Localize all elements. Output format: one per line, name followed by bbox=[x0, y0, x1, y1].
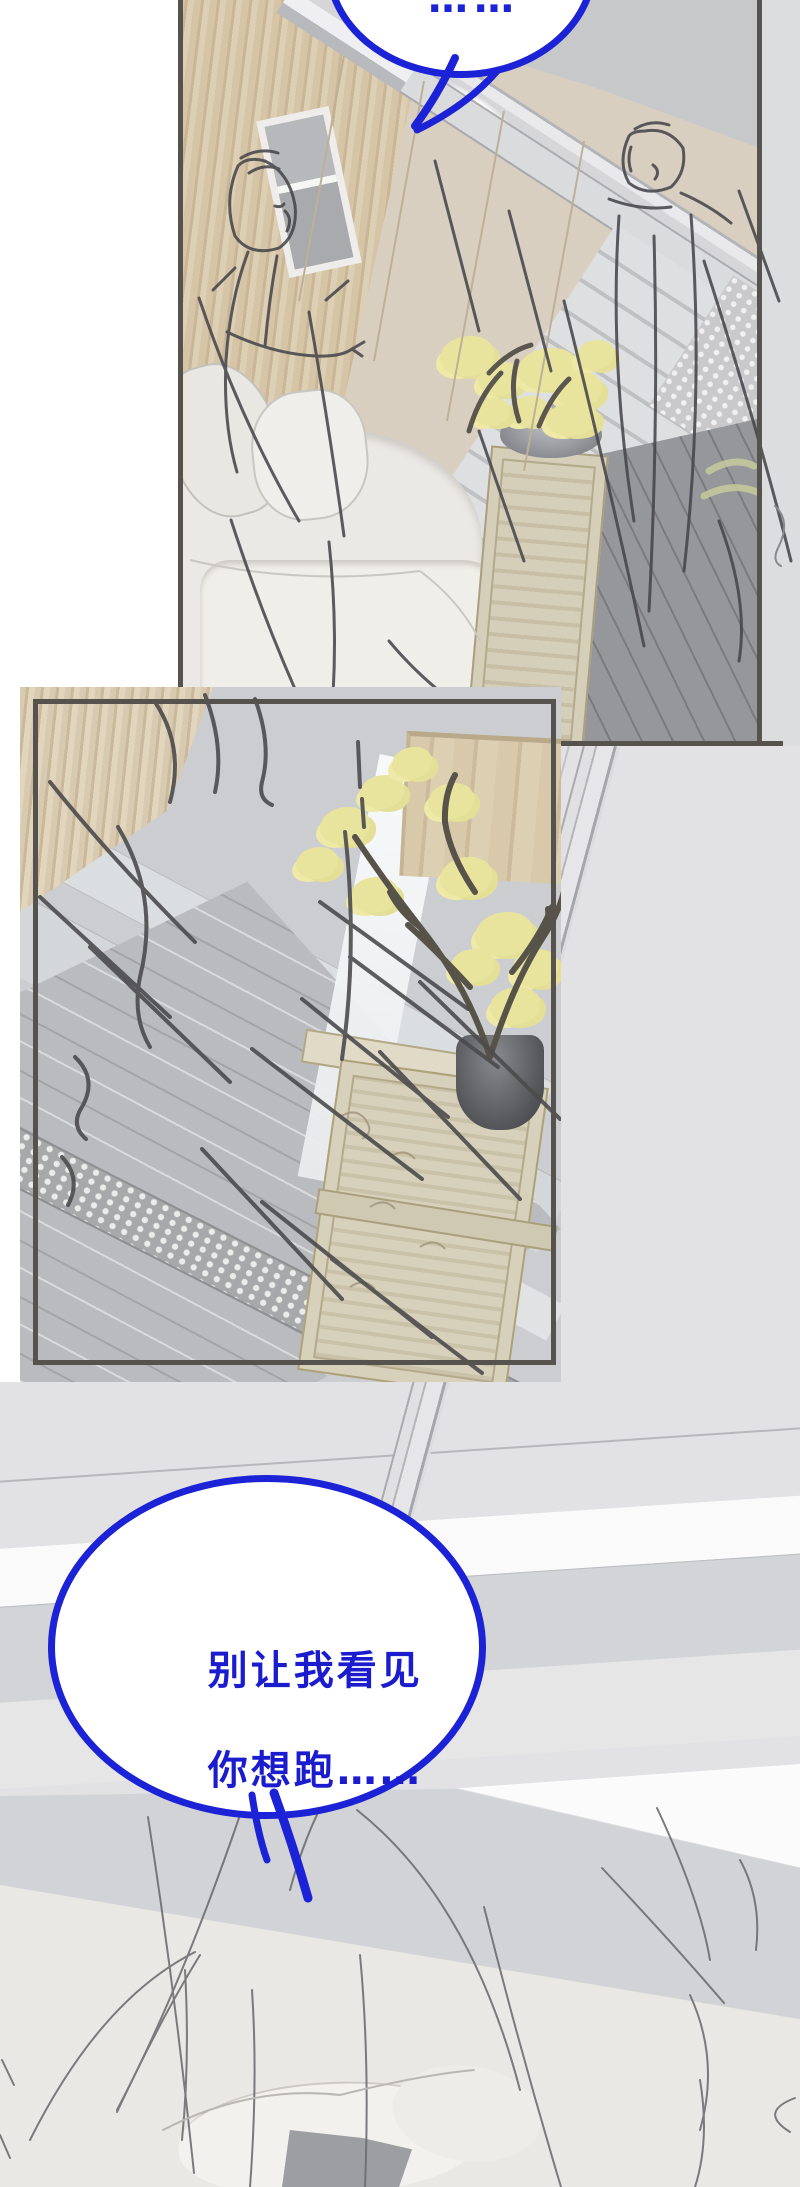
bubble-line-1: 别让我看见 bbox=[208, 1648, 423, 1694]
comic-page: …… bbox=[0, 0, 800, 2187]
panel2-border-bottom bbox=[33, 1360, 556, 1365]
panel-1: …… bbox=[178, 0, 800, 746]
speech-bubble-partial-text: …… bbox=[428, 0, 520, 24]
panel2-sketch-lines bbox=[20, 687, 561, 1382]
speech-bubble-tail bbox=[408, 52, 508, 142]
panel1-border-right bbox=[757, 0, 762, 746]
plant-branches bbox=[355, 775, 561, 1057]
speech-bubble-main-tail bbox=[240, 1786, 330, 1906]
plant-leaves bbox=[704, 462, 759, 496]
panel-2 bbox=[20, 687, 561, 1382]
panel2-border-top bbox=[33, 699, 556, 704]
plant-branches bbox=[469, 345, 569, 431]
figure-sketches bbox=[199, 123, 791, 741]
panel2-border-right bbox=[551, 699, 556, 1365]
panel2-border-left bbox=[33, 699, 38, 1365]
panel1-border-left bbox=[178, 0, 183, 746]
carving-curls bbox=[340, 1112, 445, 1289]
